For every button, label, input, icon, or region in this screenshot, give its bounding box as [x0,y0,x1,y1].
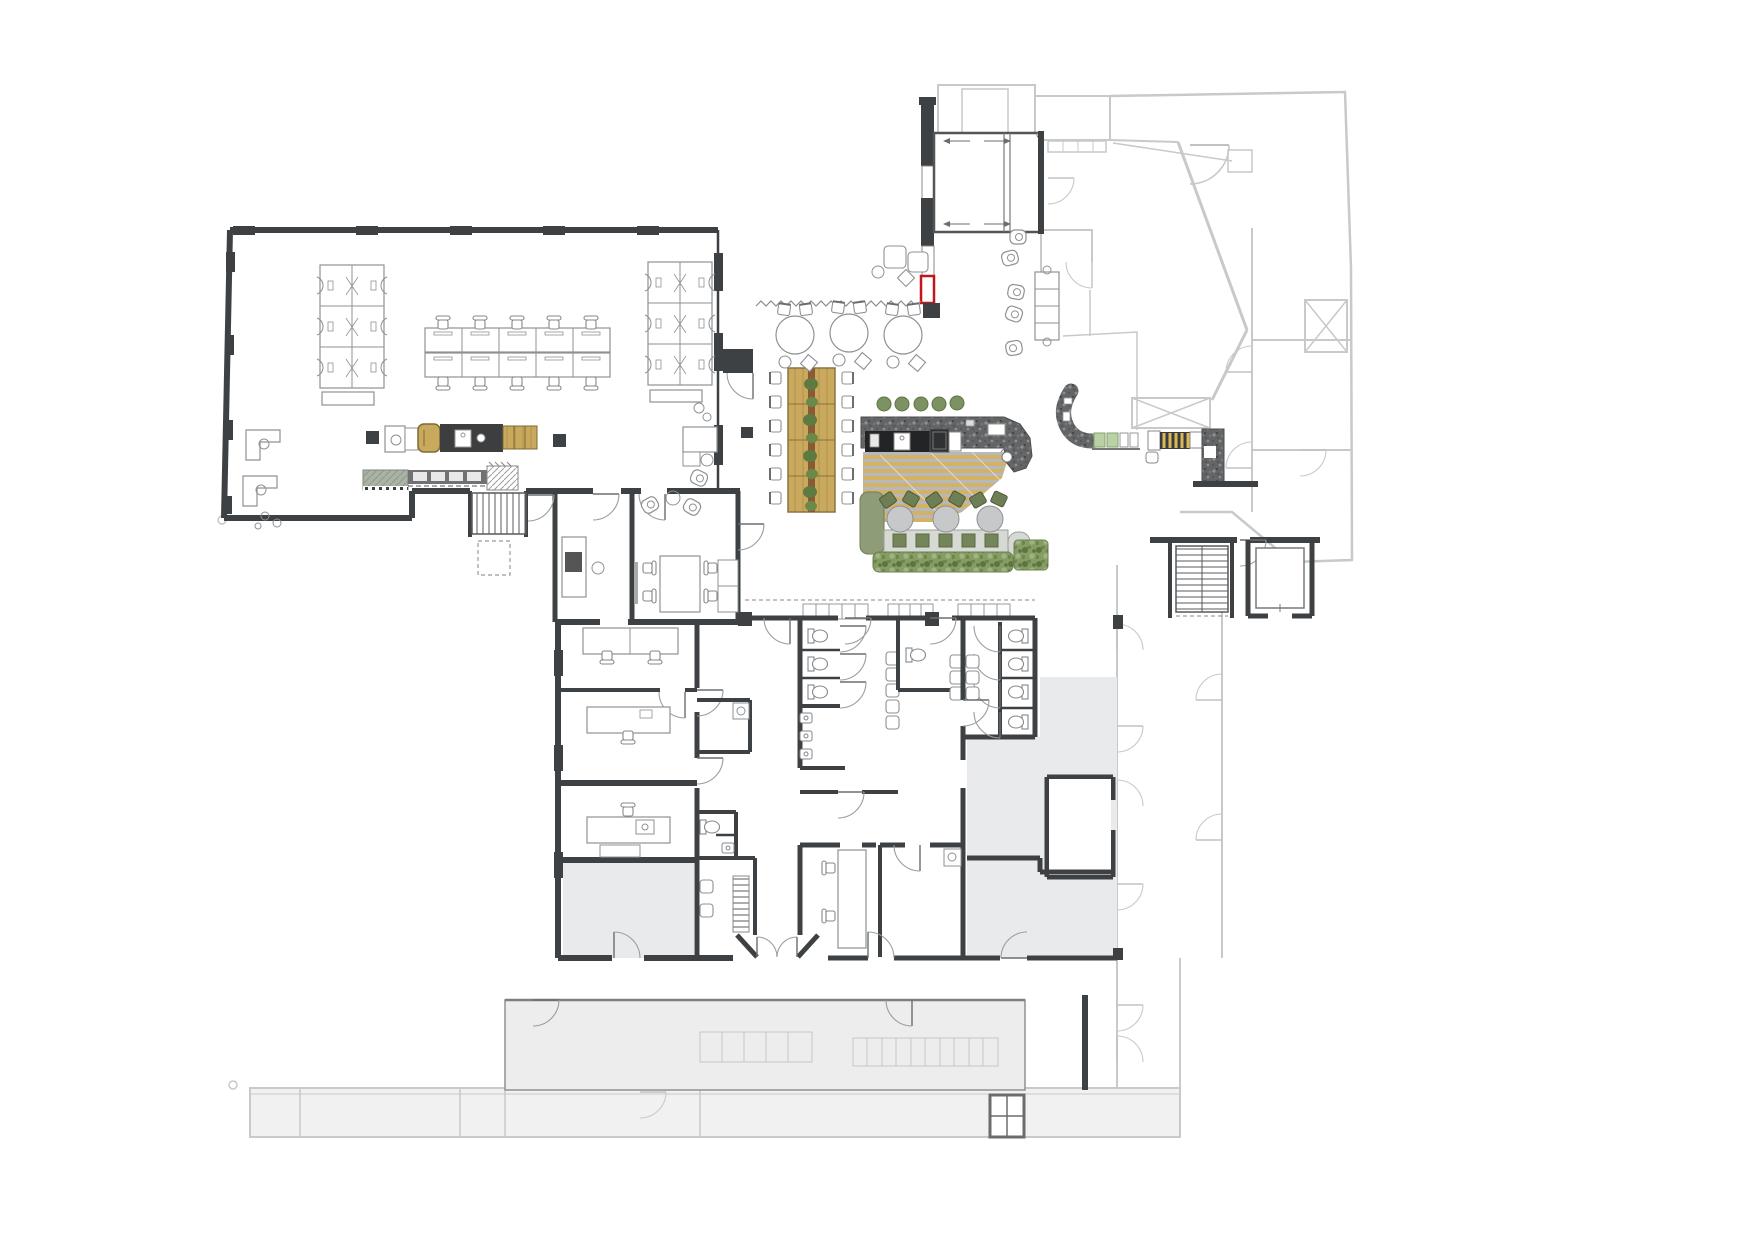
desk-row [425,353,610,377]
side-table [908,252,928,272]
office-west-wall [224,230,230,518]
plant-pot [895,397,909,411]
coat-rack [487,466,518,490]
sideboard [322,392,374,405]
plant [806,469,818,479]
survey-point [229,1081,237,1089]
entrance-vestibule [934,133,1040,232]
floor-plan-viewport [0,0,1754,1240]
stair [472,493,526,534]
cafe-table [977,506,1003,532]
loading-hall [505,1000,1025,1090]
side-table [884,246,906,268]
plant [806,397,818,407]
floor-plan-canvas [0,0,1754,1240]
desk-cluster [317,265,387,388]
entry-canopy [938,85,1035,137]
plant [803,450,817,462]
plant [805,501,817,511]
new-walls [223,97,1320,1137]
whiteboard [634,562,638,604]
round-table [776,303,817,371]
planting-bed [873,552,1013,572]
shaft-dashed [478,541,510,575]
plant [803,414,817,426]
plant-pot [877,397,891,411]
round-table [884,303,925,371]
basin [944,849,961,866]
cafe-table [933,506,959,532]
desk-cluster [645,262,715,385]
existing-lower-band [250,1088,1180,1137]
highlighted-element [921,276,934,303]
elevator-car [1256,548,1304,608]
planting-bed [1014,540,1048,570]
existing-wing-outline [1110,92,1352,562]
service-room [1040,677,1117,737]
storage-room [563,862,694,958]
meeting-table [660,556,700,612]
office-desk [587,707,670,733]
wall-pier [723,349,753,373]
work-table [838,850,866,948]
round-table [830,301,871,369]
entrance-pier [921,100,934,166]
credenza [600,845,640,857]
column [366,431,379,444]
basin [733,703,749,719]
column [553,434,566,447]
plant [806,433,818,443]
furniture [243,230,1059,948]
plant-pot [914,397,928,411]
office-desk [587,817,670,843]
sideboard [650,390,702,402]
wall-pier [741,427,753,438]
plant [804,378,818,390]
plant-pot [950,396,964,410]
plant-pot [932,397,946,411]
bar-stool [1002,452,1012,462]
desk-row [425,328,610,352]
cafe-table [887,506,913,532]
wall-pier [925,612,939,626]
plant [803,486,817,498]
shelf [733,876,749,932]
wall-pier [738,612,752,626]
